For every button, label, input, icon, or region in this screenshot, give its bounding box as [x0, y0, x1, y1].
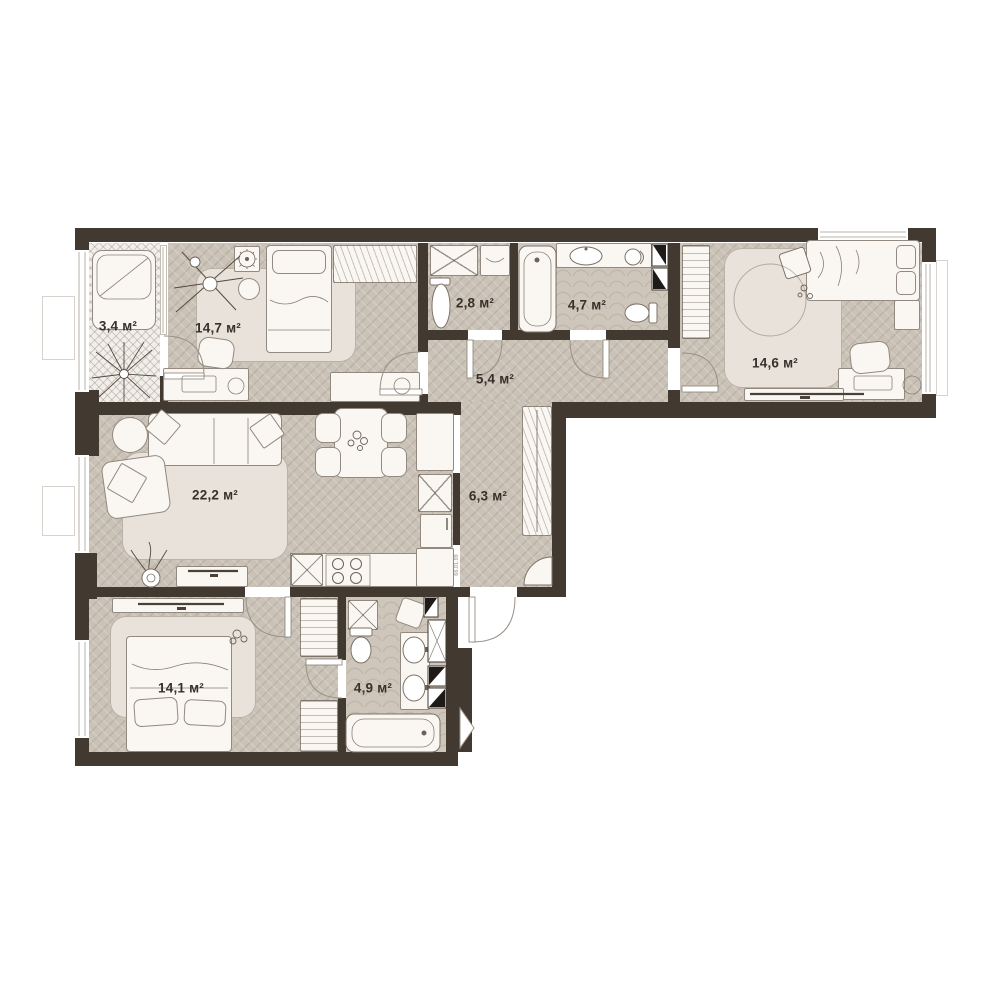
sink-bottom-1: [403, 637, 430, 663]
room-label-balcony: 3,4 м²: [99, 319, 137, 334]
room-label-bedroom-top-right: 14,6 м²: [752, 356, 798, 371]
bathtub-top: [519, 246, 556, 332]
room-label-bathroom-bottom: 4,9 м²: [354, 681, 392, 696]
balcony-plant: [92, 342, 156, 402]
door-bedroom-top-right: [682, 353, 718, 392]
sink-top: [570, 247, 602, 265]
rug-circle-deco: [734, 264, 806, 336]
crossed-sticks-deco: [174, 252, 243, 312]
sink-bottom-2: [403, 675, 430, 701]
drawer-handle-wc: [486, 258, 504, 262]
door-bedroom-top-left: [380, 352, 422, 395]
living-plant: [131, 542, 167, 587]
dining-flowers: [348, 431, 368, 451]
room-label-hallway-main: 6,3 м²: [469, 489, 507, 504]
corner-shelf-hallway: [524, 557, 552, 585]
board-deco-bedroom-right: [779, 247, 813, 299]
door-ajar-exterior: [460, 708, 474, 748]
window-glazing-lines: [79, 232, 930, 736]
door-bathroom-top: [570, 340, 609, 378]
room-label-bedroom-top-left: 14,7 м²: [195, 321, 241, 336]
furniture-details: [97, 246, 921, 688]
room-label-living-room: 22,2 м²: [192, 488, 238, 503]
room-label-wc: 2,8 м²: [456, 296, 494, 311]
toilet-bottom: [350, 628, 372, 663]
door-entrance: [469, 597, 515, 642]
room-label-bathroom-top: 4,7 м²: [568, 298, 606, 313]
stove: [326, 555, 370, 586]
door-dimension-marking: 66.01.99: [454, 554, 460, 575]
door-bathroom-bottom: [306, 659, 342, 698]
bathtub-bottom: [346, 714, 440, 752]
floorplan: 3,4 м² 14,7 м² 2,8 м² 4,7 м² 5,4 м² 14,6…: [0, 0, 1000, 1000]
flower-doodle-bedroom-bottom: [230, 630, 247, 644]
toilet-top: [625, 303, 657, 323]
jug-deco: [625, 249, 644, 265]
toilet-wc: [430, 278, 450, 328]
room-label-bedroom-bottom-left: 14,1 м²: [158, 681, 204, 696]
room-label-hallway-top: 5,4 м²: [476, 372, 514, 387]
duct-shaft-bottom: [424, 597, 446, 708]
mandala-deco: [237, 249, 257, 269]
door-balcony: [164, 336, 204, 379]
duct-shaft-top: [652, 244, 668, 290]
door-bedroom-bottom-left: [246, 597, 291, 637]
